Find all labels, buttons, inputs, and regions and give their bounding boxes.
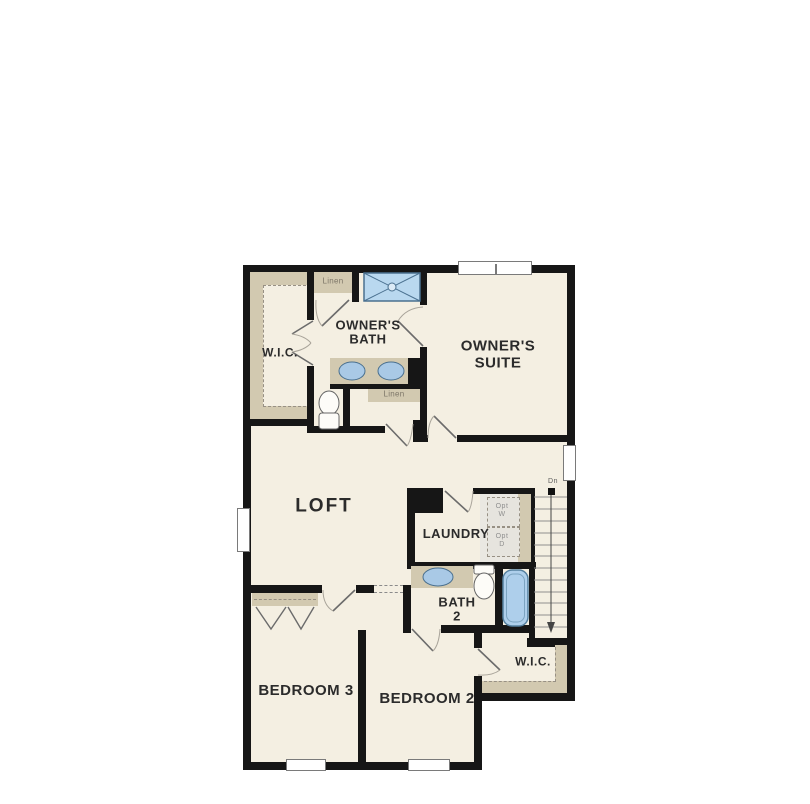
- wall-hall-chunk: [356, 585, 374, 593]
- wall-suite-bottom: [457, 435, 575, 442]
- label-bedroom3: BEDROOM 3: [258, 683, 353, 700]
- floorplan-canvas: W.I.C. OWNER'S BATH OWNER'S SUITE LOFT L…: [0, 0, 810, 804]
- wall-tub-divider: [495, 562, 503, 628]
- vanity-counter-bath2: [411, 566, 473, 588]
- label-owners-suite: OWNER'S SUITE: [461, 339, 536, 372]
- window-loft-left: [237, 508, 250, 552]
- wall-suite-left-upper: [420, 272, 427, 305]
- label-owners-suite-line1: OWNER'S: [461, 339, 536, 356]
- label-wic-owner: W.I.C.: [262, 346, 298, 359]
- wic1-shelf-bottom: [263, 406, 307, 419]
- wall-bath-hall-bottom: [307, 426, 385, 433]
- wall-wic1-right-upper: [307, 272, 314, 320]
- wall-bedroom2-right: [474, 676, 482, 770]
- label-linen-lower: Linen: [383, 391, 404, 400]
- label-owners-bath-line2: BATH: [335, 333, 400, 347]
- label-opt-dryer: Opt D: [496, 533, 509, 549]
- wall-vanity-end: [408, 358, 421, 384]
- label-loft: LOFT: [295, 497, 353, 518]
- wall-loft-bedroom3: [250, 585, 322, 593]
- wall-hall-bottom-chunk: [403, 625, 411, 633]
- wall-wic2-left-upper: [474, 625, 482, 648]
- label-opt-dryer-line1: Opt: [496, 533, 509, 541]
- wall-linen1-right: [352, 272, 359, 302]
- wall-laundry-left: [407, 507, 415, 569]
- wall-between-bedrooms: [358, 630, 366, 763]
- label-owners-bath-line1: OWNER'S: [335, 319, 400, 333]
- wic2-shelf-bottom: [482, 681, 567, 693]
- label-owners-suite-line2: SUITE: [461, 355, 536, 372]
- label-bedroom2: BEDROOM 2: [379, 691, 474, 708]
- wic1-shelf-top: [263, 272, 307, 285]
- window-mullion: [495, 264, 497, 274]
- wall-wic2-bottom: [474, 693, 575, 701]
- label-opt-washer-line1: Opt: [496, 503, 509, 511]
- window-bedroom2: [408, 759, 450, 771]
- cased-opening: [374, 585, 403, 593]
- label-bath2: BATH 2: [438, 596, 475, 625]
- wall-wic1-right-lower: [307, 366, 314, 426]
- label-wic-bedroom2: W.I.C.: [515, 655, 551, 668]
- window-bedroom3: [286, 759, 326, 771]
- label-opt-washer-line2: W: [496, 511, 509, 519]
- wall-wic1-bottom: [250, 419, 314, 426]
- bedroom3-closet-dashline: [254, 599, 316, 600]
- vanity-counter-owner: [330, 358, 408, 384]
- label-bath2-line2: 2: [438, 610, 475, 624]
- window-stairs-right: [563, 445, 576, 481]
- wall-suite-door-chunk: [420, 435, 428, 442]
- wall-outer-right: [567, 265, 575, 701]
- label-laundry: LAUNDRY: [423, 527, 490, 541]
- wall-bath2-bottom: [441, 625, 531, 633]
- wall-toilet-nook-right: [343, 385, 350, 432]
- label-opt-washer: Opt W: [496, 503, 509, 519]
- wall-stairs-bottom: [527, 638, 575, 647]
- label-bath2-line1: BATH: [438, 596, 475, 610]
- window-owners-suite: [458, 261, 532, 275]
- wic1-shelf-left: [250, 272, 263, 419]
- label-stairs-dn: Dn: [548, 478, 558, 486]
- label-owners-bath: OWNER'S BATH: [335, 319, 400, 348]
- label-opt-dryer-line2: D: [496, 541, 509, 549]
- label-linen-upper: Linen: [322, 278, 343, 287]
